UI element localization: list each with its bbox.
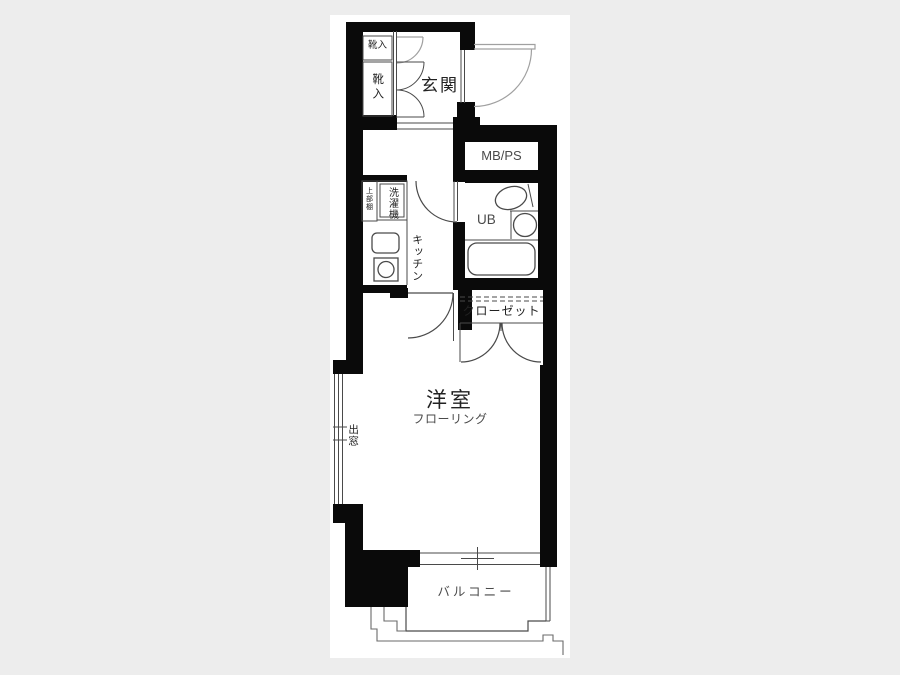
wall-segment [346, 22, 363, 116]
wall-segment [345, 523, 363, 568]
wall-segment [540, 365, 557, 567]
bathtub-icon [468, 243, 535, 275]
kitchen-sink-icon [372, 233, 399, 253]
entrance-label: 玄関 [418, 76, 462, 96]
wall-segment [346, 130, 363, 361]
wall-segment [333, 360, 363, 374]
wall-segment [465, 170, 557, 183]
floor-plan-drawing [0, 0, 900, 675]
wall-segment [460, 22, 475, 50]
wall-segment [538, 183, 557, 290]
wall-segment [346, 115, 397, 130]
unit-bath-label: UB [477, 212, 496, 228]
kitchen-label: キッチン [410, 234, 423, 282]
bay-window-label: 出窓 [347, 424, 359, 447]
wall-segment [453, 278, 557, 290]
meter-box-label: MB/PS [465, 149, 538, 164]
floor-plan-page: 靴入 靴入 玄関 MB/PS UB 上部棚 洗濯機 キッチン クローゼット 洋室… [0, 0, 900, 675]
closet-label: クローゼット [460, 305, 543, 319]
washing-machine-label: 洗濯機 [386, 187, 398, 220]
wall-segment [345, 566, 408, 607]
wall-segment [333, 504, 363, 523]
washbasin-icon [514, 214, 537, 237]
flooring-label: フローリング [400, 413, 500, 427]
western-room-label: 洋室 [405, 389, 495, 413]
stove-burner-icon [378, 262, 394, 278]
wall-segment [543, 290, 557, 365]
wall-segment [390, 288, 408, 298]
wall-segment [346, 22, 475, 32]
wall-segment [361, 550, 420, 567]
shoe-cabinet-lower-label: 靴入 [370, 73, 383, 102]
upper-shelf-label: 上部棚 [365, 187, 373, 211]
shoe-cabinet-upper-label: 靴入 [363, 41, 392, 52]
balcony-label: バルコニー [420, 585, 532, 599]
